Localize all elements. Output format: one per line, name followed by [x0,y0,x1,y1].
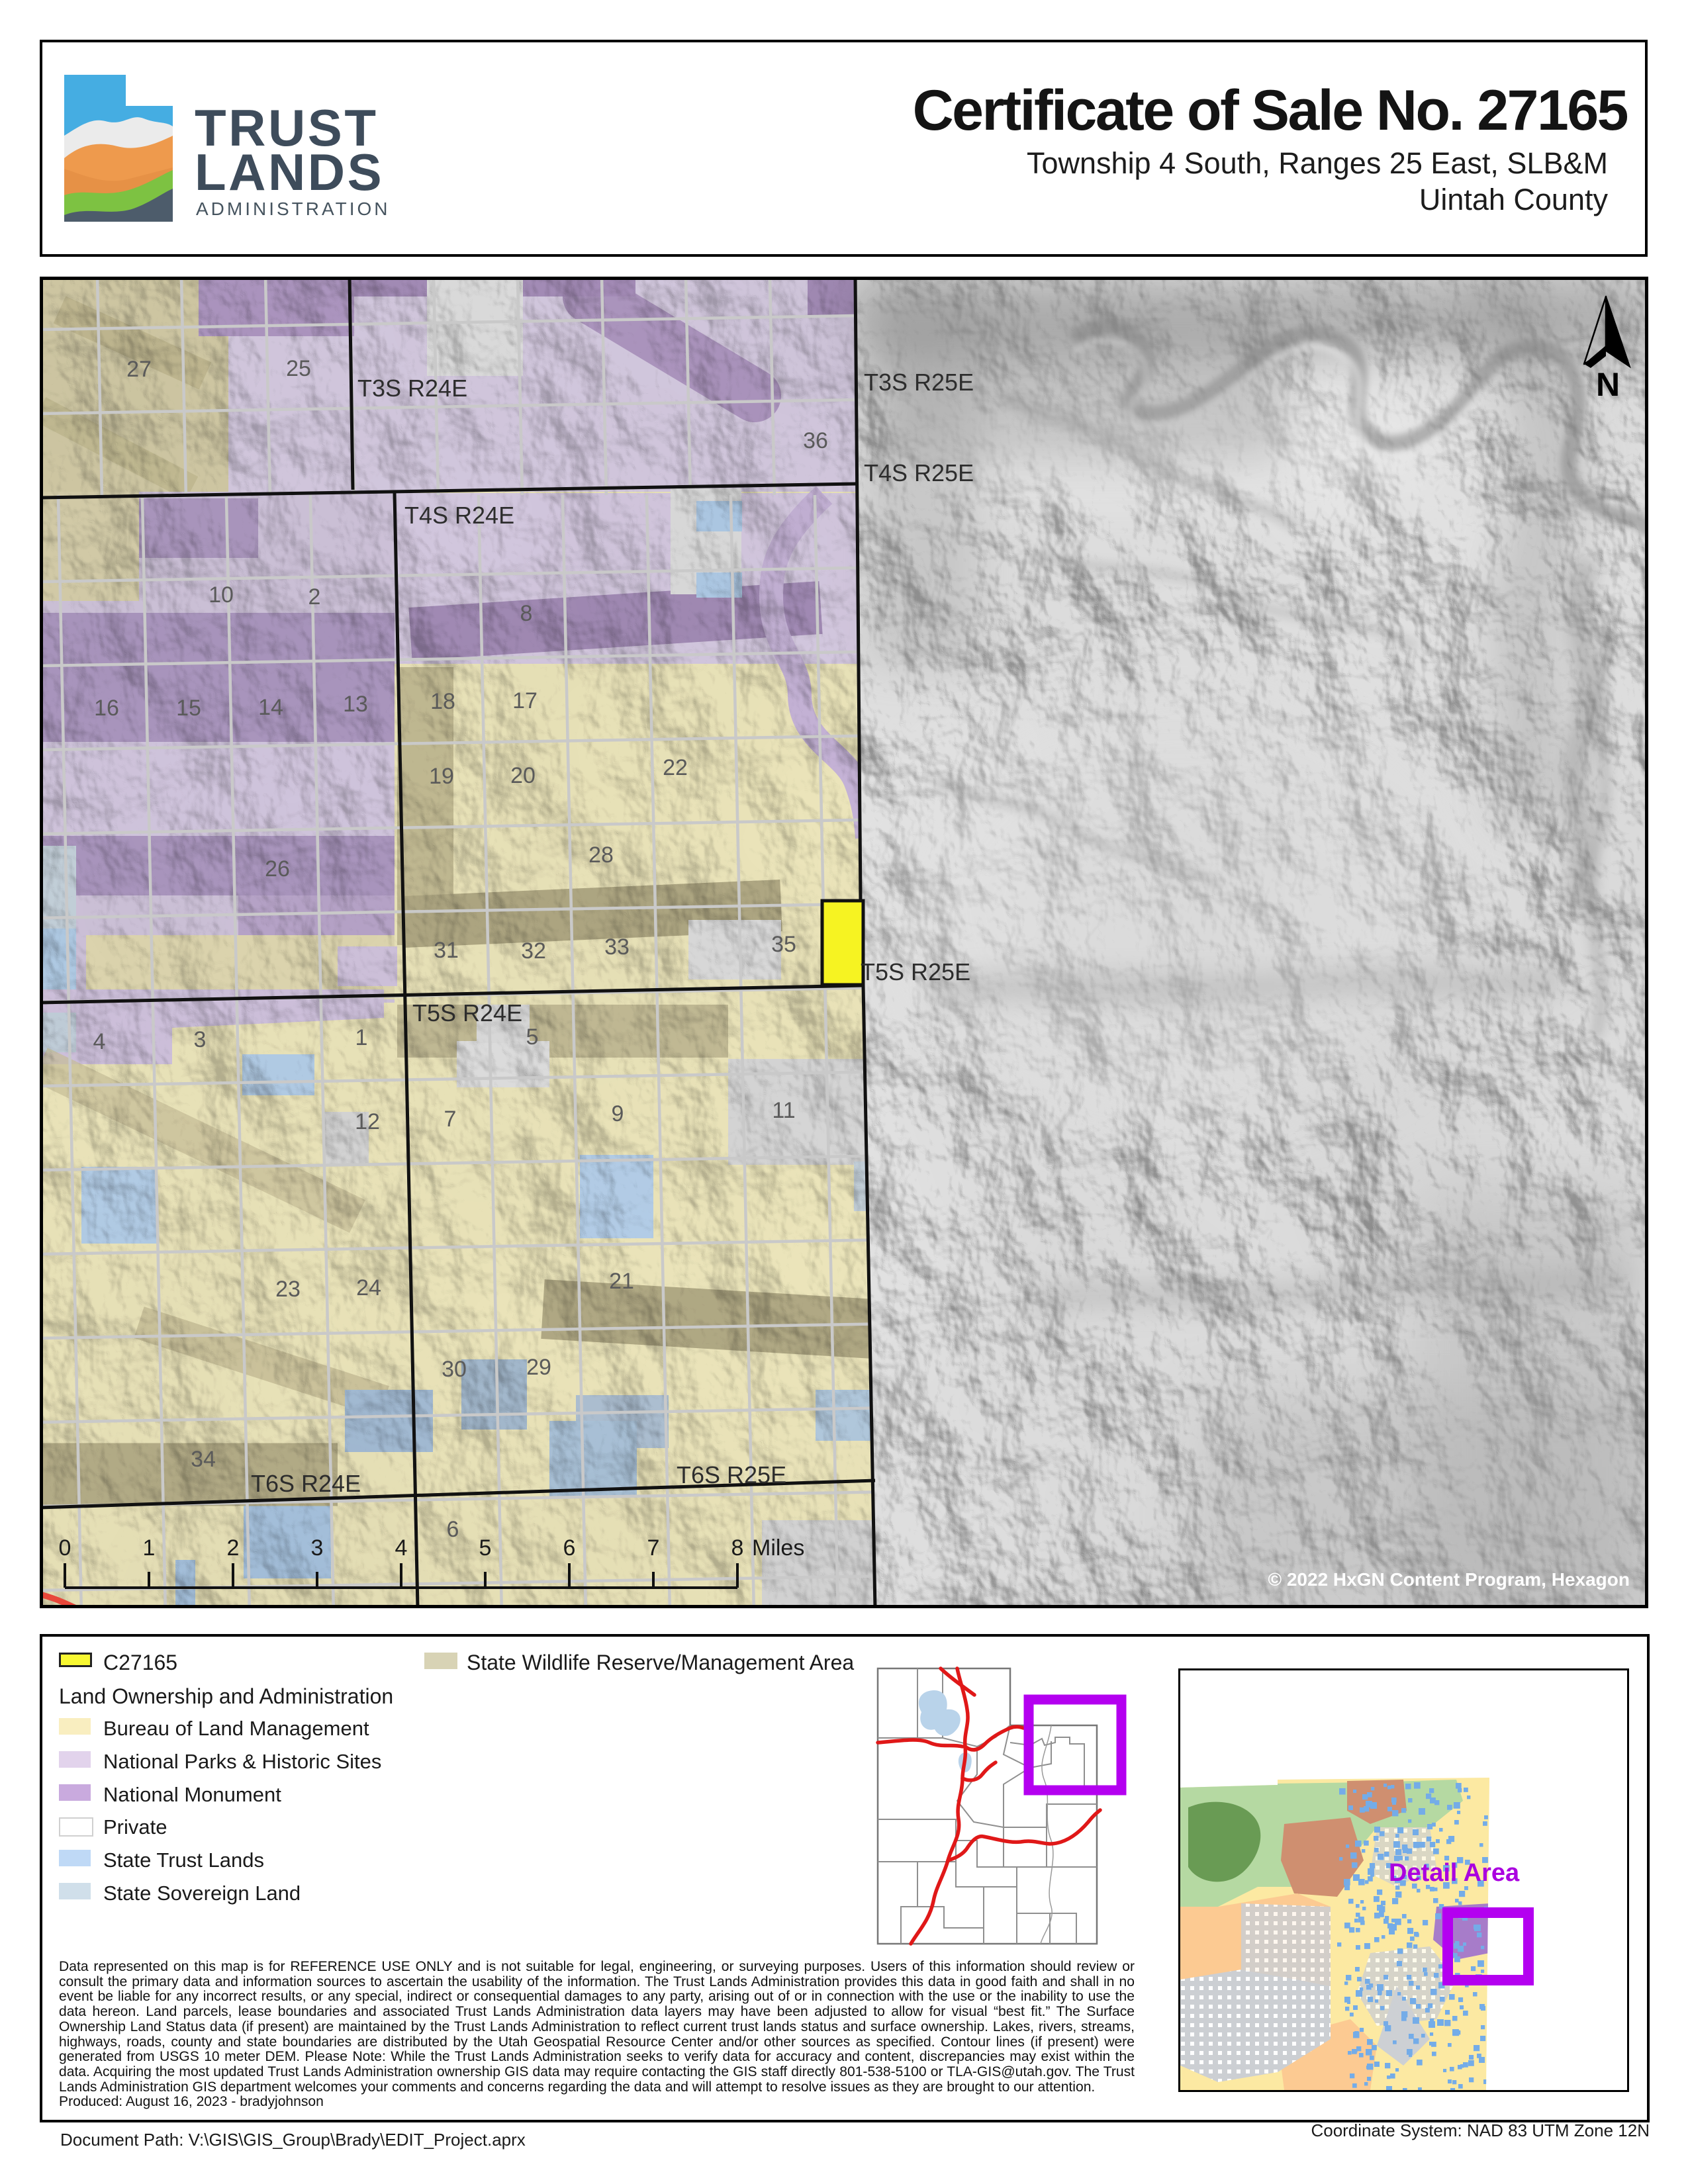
svg-text:26: 26 [265,856,290,882]
svg-text:T5S R25E: T5S R25E [861,958,970,985]
svg-text:T5S R24E: T5S R24E [412,999,522,1026]
svg-text:28: 28 [588,842,614,868]
svg-text:29: 29 [526,1355,551,1380]
svg-text:36: 36 [803,428,828,453]
svg-text:18: 18 [430,689,455,714]
svg-text:12: 12 [355,1109,380,1134]
svg-text:8: 8 [520,601,533,626]
svg-text:Miles: Miles [752,1535,804,1561]
svg-text:2: 2 [308,584,321,610]
svg-text:3: 3 [194,1027,207,1052]
svg-text:24: 24 [356,1275,381,1300]
svg-text:11: 11 [772,1098,795,1123]
svg-text:14: 14 [258,695,283,720]
svg-text:16: 16 [94,696,119,721]
svg-text:17: 17 [512,688,538,713]
svg-text:1: 1 [355,1025,368,1050]
svg-text:T6S R25E: T6S R25E [677,1461,786,1488]
svg-text:34: 34 [191,1447,216,1472]
svg-text:10: 10 [209,582,234,608]
svg-text:19: 19 [429,764,454,789]
svg-text:5: 5 [479,1535,492,1561]
svg-text:T4S R25E: T4S R25E [864,459,974,486]
svg-text:T6S R24E: T6S R24E [251,1470,361,1497]
svg-text:© 2022 HxGN Content Program, H: © 2022 HxGN Content Program, Hexagon [1268,1569,1630,1590]
svg-text:T3S R24E: T3S R24E [357,375,467,402]
svg-text:4: 4 [93,1029,106,1054]
svg-text:33: 33 [604,934,630,960]
svg-text:32: 32 [521,938,546,964]
svg-text:13: 13 [343,692,368,717]
svg-text:6: 6 [563,1535,576,1561]
svg-text:31: 31 [434,938,459,963]
svg-text:6: 6 [447,1517,459,1542]
svg-text:4: 4 [395,1535,408,1561]
svg-text:9: 9 [612,1101,624,1126]
svg-text:3: 3 [311,1535,324,1561]
svg-text:15: 15 [176,696,201,721]
svg-text:21: 21 [609,1269,634,1294]
svg-text:30: 30 [442,1357,467,1382]
svg-text:35: 35 [771,932,796,957]
svg-text:T3S R25E: T3S R25E [864,369,974,396]
svg-text:23: 23 [275,1277,301,1302]
svg-text:5: 5 [526,1024,539,1050]
svg-text:1: 1 [143,1535,156,1561]
svg-text:27: 27 [126,357,152,382]
svg-text:22: 22 [663,755,688,780]
svg-text:Detail Area: Detail Area [1389,1859,1520,1887]
svg-text:0: 0 [59,1535,71,1561]
svg-text:T4S R24E: T4S R24E [404,502,514,529]
svg-text:N: N [1596,366,1620,403]
svg-text:20: 20 [510,763,536,788]
svg-text:8: 8 [731,1535,744,1561]
svg-text:7: 7 [444,1107,457,1132]
svg-text:7: 7 [647,1535,660,1561]
svg-text:25: 25 [286,356,311,381]
svg-text:2: 2 [227,1535,240,1561]
